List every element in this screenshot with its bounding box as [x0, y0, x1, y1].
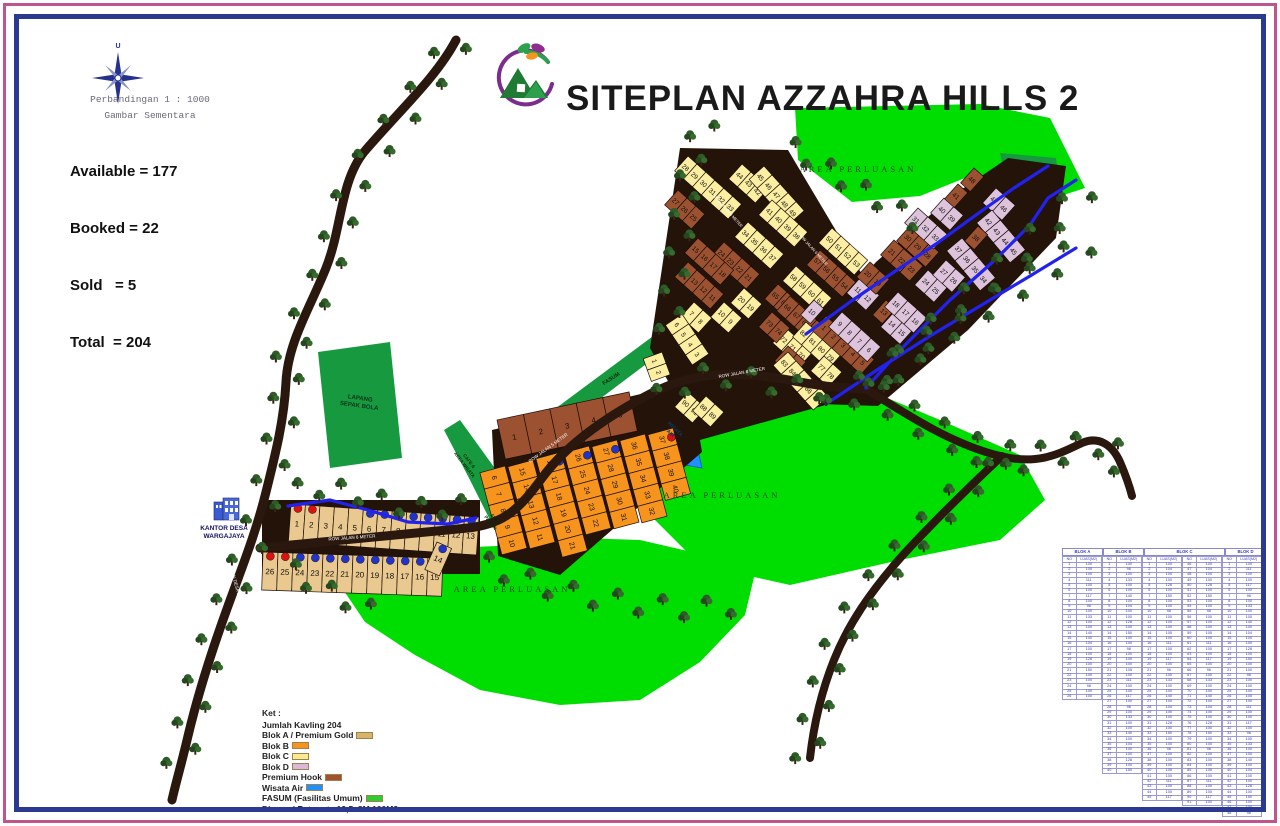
map-label: AREA PERLUASAN: [454, 584, 571, 594]
map-label: WARGAJAYA: [203, 533, 244, 540]
tree-icon: [1051, 268, 1063, 280]
tree-icon: [1017, 290, 1029, 302]
map-label: AREA PERLUASAN: [800, 164, 917, 174]
legend-item: Blok C: [262, 751, 398, 762]
table-row: 40150: [1103, 769, 1142, 774]
table-group-header: BLOK C: [1144, 548, 1225, 556]
tree-icon: [376, 489, 388, 501]
tree-icon: [819, 638, 831, 650]
tree-icon: [708, 120, 720, 132]
sold-dot: [281, 553, 289, 561]
tree-icon: [318, 230, 330, 242]
tree-icon: [182, 674, 194, 686]
tree-icon: [241, 582, 253, 594]
lot-number: 17: [400, 572, 410, 581]
tree-icon: [684, 130, 696, 142]
lot-strip: 262524232221201918171615: [262, 552, 443, 596]
tree-icon: [267, 392, 279, 404]
legend-swatch: [306, 784, 323, 791]
legend-item-label: Blok C: [262, 751, 289, 762]
legend-item: Jumlah Kavling 204: [262, 720, 398, 731]
road: [172, 40, 456, 800]
legend-item: Blok D: [262, 762, 398, 773]
booked-dot: [311, 554, 319, 562]
tree-icon: [436, 78, 448, 90]
booked-dot: [409, 512, 418, 521]
table-group-header: BLOK D: [1225, 548, 1266, 556]
lot-number: 16: [415, 572, 425, 581]
legend-swatch: [292, 742, 309, 749]
table-cell: 45: [1143, 795, 1157, 800]
tree-icon: [319, 298, 331, 310]
legend-item-label: Jumlah Kavling 204: [262, 720, 341, 731]
lot-number: 13: [466, 531, 476, 541]
legend-item-label: Blok A / Premium Gold: [262, 730, 353, 741]
stat-booked: Booked = 22: [70, 219, 177, 238]
table-cell: 100: [1196, 800, 1221, 805]
table-cell: 48: [1223, 811, 1237, 816]
booked-dot: [401, 557, 409, 565]
tree-icon: [1085, 246, 1097, 258]
tree-icon: [225, 622, 237, 634]
table-cell: 117: [1156, 795, 1181, 800]
tree-icon: [261, 433, 273, 445]
table-cell: 150: [1116, 769, 1141, 774]
lot-number: 23: [310, 569, 320, 578]
legend-swatch: [325, 774, 342, 781]
booked-dot: [341, 555, 349, 563]
sold-dot: [266, 552, 274, 560]
map-label: KANTOR DESA: [200, 525, 248, 532]
tree-icon: [195, 633, 207, 645]
table-cell: 26: [1063, 694, 1077, 699]
legend-item: Premium Hook: [262, 772, 398, 783]
scale-note: Perbandingan 1 : 1000 Gambar Sementara: [60, 92, 240, 124]
legend-item: Blok A / Premium Gold: [262, 730, 398, 741]
tree-icon: [871, 201, 883, 213]
tree-icon: [359, 180, 371, 192]
availability-stats: Available = 177 Booked = 22 Sold = 5 Tot…: [70, 124, 177, 390]
legend-item: Blok B: [262, 741, 398, 752]
table-group-header: BLOK A: [1062, 548, 1103, 556]
legend-item: Wisata Air: [262, 783, 398, 794]
tree-icon: [189, 743, 201, 755]
tree-icon: [384, 145, 396, 157]
lot-number: 25: [280, 568, 290, 577]
tree-icon: [797, 713, 809, 725]
tree-icon: [160, 757, 172, 769]
tree-icon: [288, 416, 300, 428]
sold-dot: [308, 505, 317, 514]
tree-icon: [1057, 457, 1069, 469]
tree-icon: [1058, 240, 1070, 252]
tree-icon: [410, 113, 422, 125]
legend-heading: Ket :: [262, 708, 398, 719]
table-cell: 91: [1183, 800, 1197, 805]
tree-icon: [428, 47, 440, 59]
booked-dot: [356, 555, 364, 563]
tree-icon: [1092, 448, 1104, 460]
table-group-header: BLOK B: [1103, 548, 1144, 556]
table-pair-column: NOLUAS(M2)110021113100410051176100796810…: [1222, 556, 1262, 817]
stat-sold: Sold = 5: [70, 276, 177, 295]
tree-icon: [250, 474, 262, 486]
tree-icon: [301, 337, 313, 349]
lot-number: 26: [265, 567, 275, 576]
siteplan-canvas: 1234567891011121326252423222120191817161…: [0, 0, 1280, 826]
tree-icon: [789, 752, 801, 764]
tree-icon: [460, 43, 472, 55]
stat-total: Total = 204: [70, 333, 177, 352]
legend-swatch: [292, 763, 309, 770]
tree-icon: [210, 593, 222, 605]
tree-icon: [838, 601, 850, 613]
legend-item-label: FASUM (Fasilitas Umum): [262, 793, 363, 804]
legend-item-label: Wisata Air: [262, 783, 303, 794]
legend-item-label: Dimensi Rata-rata 12,5x8M 100M2: [262, 804, 398, 815]
table-pair-column: NOLUAS(M2)461004710448100491005012851100…: [1182, 556, 1222, 806]
table-row: 26100: [1063, 694, 1102, 699]
tree-icon: [270, 351, 282, 363]
table-pair-column: NOLUAS(M2)110029631004133510061007140810…: [1102, 556, 1142, 774]
legend-item-label: Blok D: [262, 762, 289, 773]
legend-item-label: Blok B: [262, 741, 289, 752]
tree-icon: [288, 307, 300, 319]
lot-number: 20: [355, 570, 365, 579]
table-cell: 100: [1076, 694, 1101, 699]
legend-swatch: [366, 795, 383, 802]
lot-number: 21: [340, 570, 350, 579]
booked-dot: [371, 556, 379, 564]
map-label: AREA PERLUASAN: [664, 490, 781, 500]
table-row: 4898: [1223, 811, 1262, 816]
legend-swatch: [292, 753, 309, 760]
tree-icon: [347, 216, 359, 228]
lot-number: 18: [385, 571, 395, 580]
map-legend: Ket : Jumlah Kavling 204Blok A / Premium…: [262, 708, 398, 814]
table-pair-column: NOLUAS(M2)110021053100411151006100711781…: [1062, 556, 1102, 700]
page-title: SITEPLAN AZZAHRA HILLS 2: [566, 79, 1079, 119]
tree-icon: [862, 569, 874, 581]
village-office-icon: [214, 498, 239, 520]
table-cell: 98: [1236, 811, 1261, 816]
booked-dot: [416, 557, 424, 565]
tree-icon: [823, 700, 835, 712]
legend-item: Dimensi Rata-rata 12,5x8M 100M2: [262, 804, 398, 815]
stat-available: Available = 177: [70, 162, 177, 181]
tree-icon: [292, 477, 304, 489]
table-pair-column: NOLUAS(M2)110021043100410051286100715081…: [1142, 556, 1182, 801]
tree-icon: [896, 199, 908, 211]
price-area-table: BLOK ABLOK BBLOK CBLOK DNOLUAS(M2)110021…: [1062, 548, 1266, 817]
tree-icon: [335, 478, 347, 490]
tree-icon: [1086, 191, 1098, 203]
booked-dot: [326, 554, 334, 562]
lot-number: 19: [370, 571, 380, 580]
tree-icon: [1035, 440, 1047, 452]
tree-icon: [171, 716, 183, 728]
lot-number: 22: [325, 569, 335, 578]
compass-north-label: U: [115, 43, 120, 50]
booked-dot: [424, 513, 433, 522]
legend-item-label: Premium Hook: [262, 772, 322, 783]
table-row: 91100: [1183, 800, 1222, 805]
tree-icon: [335, 257, 347, 269]
table-row: 45117: [1143, 795, 1182, 800]
table-cell: 40: [1103, 769, 1117, 774]
legend-item: FASUM (Fasilitas Umum): [262, 793, 398, 804]
legend-swatch: [356, 732, 373, 739]
tree-icon: [293, 373, 305, 385]
brand-logo-icon: [486, 40, 560, 118]
booked-dot: [386, 556, 394, 564]
tree-icon: [279, 459, 291, 471]
tree-icon: [340, 601, 352, 613]
tree-icon: [807, 675, 819, 687]
